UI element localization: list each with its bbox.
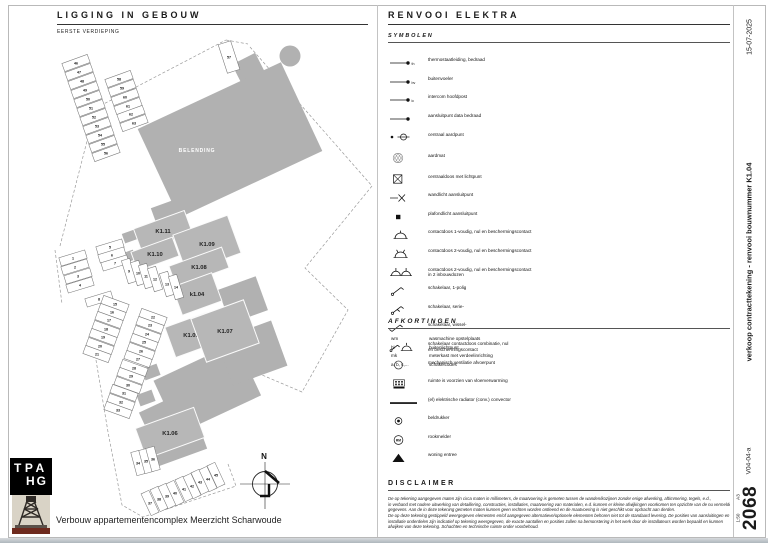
parking-stall-number: 47 bbox=[77, 70, 81, 74]
sheet-scale: 1:50 bbox=[736, 514, 741, 523]
legend-row: plafondlicht aansluitpunt bbox=[388, 209, 730, 227]
abbreviation-value: meterkast met verdeelinrichting bbox=[429, 353, 493, 358]
sw1-icon bbox=[388, 283, 428, 301]
parking-stall-number: 32 bbox=[119, 400, 123, 404]
parking-stall-number: 19 bbox=[101, 335, 105, 339]
parking-stall-number: 44 bbox=[206, 477, 210, 481]
socket2b-icon bbox=[388, 264, 428, 282]
legend-label: centraaldoos met lichtpunt bbox=[428, 174, 482, 180]
parking-stall-number: 20 bbox=[98, 344, 102, 348]
disclaimer-line: afwijken van deze tekening. Schachten en… bbox=[388, 524, 730, 530]
parking-stall-number: 11 bbox=[144, 274, 148, 278]
wire-icon bbox=[388, 111, 428, 129]
parking-stall-number: 25 bbox=[142, 340, 146, 344]
legend-label: plafondlicht aansluitpunt bbox=[428, 211, 477, 217]
unit-label: K1.11 bbox=[155, 229, 171, 235]
parking-stall-number: 36 bbox=[151, 457, 155, 461]
parking-stall-number: 46 bbox=[74, 61, 78, 65]
legend-row: schakelaar, 1-polig bbox=[388, 283, 730, 301]
logo-line-2: HG bbox=[10, 474, 52, 488]
unit-label: K1.07 bbox=[217, 329, 232, 335]
legend-label: schakelaar, 1-polig bbox=[428, 285, 466, 291]
divider-titleblock bbox=[733, 5, 734, 537]
project-title: Verbouw appartementencomplex Meerzicht S… bbox=[56, 515, 282, 525]
abbreviation-value: schakelcodes bbox=[429, 362, 457, 367]
abbreviation-row: blbuitenlichtpunt bbox=[388, 345, 730, 350]
parking-stall-number: 34 bbox=[136, 461, 140, 465]
svg-text:ic: ic bbox=[412, 99, 415, 103]
logo-line-1: TPA bbox=[10, 458, 52, 475]
svg-text:RM: RM bbox=[396, 438, 401, 442]
parking-stall-number: 55 bbox=[101, 142, 105, 146]
parking-stall-number: 22 bbox=[151, 315, 155, 319]
divider-plan-legend bbox=[377, 5, 378, 537]
legend-row: contactdoos 2-voudig, nul en bescherming… bbox=[388, 264, 730, 282]
earth-icon bbox=[388, 129, 428, 147]
parking-stall-number: 35 bbox=[144, 459, 148, 463]
legend-row: beldrukker bbox=[388, 413, 730, 431]
unit-label: k1.04 bbox=[190, 292, 205, 298]
parking-stall-number: 40 bbox=[173, 491, 177, 495]
legend-label: intercom hoofdpost bbox=[428, 94, 467, 100]
parking-stall-number: 58 bbox=[117, 77, 121, 81]
abbreviation-list: wmwasmachine opstelplaatsblbuitenlichtpu… bbox=[388, 336, 730, 367]
symbols-heading: SYMBOLEN bbox=[388, 33, 730, 39]
page-bottom-edge bbox=[0, 538, 768, 543]
parking-stall-number: 53 bbox=[95, 124, 99, 128]
unit-label: K1.08 bbox=[191, 265, 207, 271]
symbol-list: ththermostaatleiding, bedraadbvbuitenvoe… bbox=[388, 55, 730, 468]
parking-stall-number: 5 bbox=[109, 245, 111, 249]
parking-stall-number: 42 bbox=[190, 484, 194, 488]
parking-stall-number: 4 bbox=[79, 283, 81, 287]
parking-stall-number: 1 bbox=[72, 256, 74, 260]
wire-icon: bv bbox=[388, 74, 428, 92]
legend-row: schakelaar, serie- bbox=[388, 302, 730, 320]
legend-label: contactdoos 2-voudig, nul en bescherming… bbox=[428, 267, 531, 279]
parking-stall-number: 27 bbox=[136, 357, 140, 361]
legend-label: thermostaatleiding, bedraad bbox=[428, 57, 485, 63]
parking-stall-number: 56 bbox=[104, 151, 108, 155]
parking-stall-number: 8 bbox=[98, 297, 100, 301]
tower-logo-image bbox=[12, 495, 50, 528]
disclaimer-line: De op deze tekening gestippeld weergegev… bbox=[388, 513, 730, 519]
legend-label: contactdoos 1-voudig, nul en bescherming… bbox=[428, 229, 531, 235]
legend-label: schakelaar, serie- bbox=[428, 304, 464, 310]
legend-label: (el) elektrische radiator (conv.) convec… bbox=[428, 397, 511, 403]
disclaimer-heading: DISCLAIMER bbox=[388, 480, 730, 487]
disclaimer-rule bbox=[388, 490, 730, 491]
legend-label: ruimte is voorzien van vloerverwarming bbox=[428, 378, 508, 384]
legend-title-rule bbox=[388, 24, 730, 25]
parking-stall-number: 13 bbox=[165, 282, 169, 286]
abbreviations-section: AFKORTINGEN wmwasmachine opstelplaatsblb… bbox=[388, 318, 730, 370]
abbreviation-row: mkmeterkast met verdeelinrichting bbox=[388, 353, 730, 358]
parking-stall-number: 33 bbox=[116, 408, 120, 412]
parking-stall-number: 41 bbox=[182, 487, 186, 491]
sheet-version: V04-04-a bbox=[746, 448, 753, 475]
building-mass bbox=[138, 62, 323, 218]
parking-stall-number: 24 bbox=[145, 332, 149, 336]
swserie-icon bbox=[388, 302, 428, 320]
abbreviation-key: a, b, c,... bbox=[388, 362, 429, 367]
plan-subtitle: EERSTE VERDIEPING bbox=[57, 29, 119, 35]
legend-label: rookmelder bbox=[428, 434, 451, 440]
abbreviation-row: wmwasmachine opstelplaats bbox=[388, 336, 730, 341]
svg-text:th: th bbox=[412, 62, 415, 66]
disclaimer-line: De op tekening aangegeven maten zijn cir… bbox=[388, 496, 730, 502]
legend-label: woning entree bbox=[428, 452, 457, 458]
symbols-rule bbox=[388, 42, 730, 43]
legend-title: RENVOOI ELEKTRA bbox=[388, 10, 730, 20]
parking-stall-number: 38 bbox=[157, 497, 161, 501]
parking-stall-number: 45 bbox=[214, 473, 218, 477]
tower-top bbox=[280, 46, 301, 67]
logo-caption-bar bbox=[12, 528, 50, 534]
parking-stall-number: 57 bbox=[227, 55, 231, 59]
parking-stall-number: 12 bbox=[153, 277, 157, 281]
parking-stall-number: 54 bbox=[98, 133, 102, 137]
legend-label: wandlicht aansluitpunt bbox=[428, 192, 473, 198]
smoke-icon: RM bbox=[388, 432, 428, 450]
legend-row: RMrookmelder bbox=[388, 432, 730, 450]
bell-icon bbox=[388, 413, 428, 431]
mat-icon bbox=[388, 150, 428, 168]
parking-stall-number: 9 bbox=[128, 269, 130, 273]
wall-icon bbox=[388, 190, 428, 208]
parking-stall-number: 28 bbox=[132, 366, 136, 370]
wire-icon: ic bbox=[388, 92, 428, 110]
tower-drawing bbox=[12, 495, 50, 528]
unit-label: K1.10 bbox=[147, 252, 162, 258]
unit-label: K1.09 bbox=[199, 242, 215, 248]
parking-stall-number: 21 bbox=[95, 352, 99, 356]
drawing-sheet: K1.11K1.09K1.10K1.08k1.04K1.05K1.07K1.06… bbox=[0, 0, 768, 543]
parking-stall-number: 43 bbox=[198, 480, 202, 484]
parking-stall-number: 63 bbox=[132, 121, 136, 125]
parking-stall-number: 29 bbox=[129, 374, 133, 378]
building-plan-svg: K1.11K1.09K1.10K1.08k1.04K1.05K1.07K1.06… bbox=[0, 0, 377, 543]
wire-icon: th bbox=[388, 55, 428, 73]
legend-label: contactdoos 2-voudig, nul en bescherming… bbox=[428, 248, 531, 254]
legend-row: wandlicht aansluitpunt bbox=[388, 190, 730, 208]
parking-stall-number: 59 bbox=[120, 86, 124, 90]
parking-stall-number: 31 bbox=[122, 391, 126, 395]
parking-stall-number: 62 bbox=[129, 112, 133, 116]
plan-title: LIGGING IN GEBOUW bbox=[57, 10, 202, 20]
disclaimer-text: De op tekening aangegeven maten zijn cir… bbox=[388, 496, 730, 530]
belending-label: BELENDING bbox=[179, 148, 216, 154]
parking-stall-number: 14 bbox=[174, 285, 178, 289]
parking-stall-number: 16 bbox=[110, 310, 114, 314]
abbreviations-rule bbox=[388, 328, 730, 329]
legend-row: icintercom hoofdpost bbox=[388, 92, 730, 110]
tpa-hg-logo: TPA HG bbox=[10, 458, 52, 495]
legend-label: aansluitpunt data bedraad bbox=[428, 113, 481, 119]
parking-stall-number: 10 bbox=[136, 271, 140, 275]
legend-row: aardmat bbox=[388, 150, 730, 168]
north-arrow-foot bbox=[260, 484, 269, 496]
parking-stall-number: 39 bbox=[165, 494, 169, 498]
legend-label: centraal aardpunt bbox=[428, 132, 464, 138]
svg-text:bv: bv bbox=[412, 80, 416, 84]
parking-stall-number: 6 bbox=[111, 253, 113, 257]
sheet-number: 2068 bbox=[740, 486, 762, 530]
socket1-icon bbox=[388, 227, 428, 245]
parking-stall-number: 50 bbox=[86, 97, 90, 101]
plan-title-rule bbox=[57, 24, 368, 25]
legend-row: contactdoos 1-voudig, nul en bescherming… bbox=[388, 227, 730, 245]
legend-row: (el) elektrische radiator (conv.) convec… bbox=[388, 395, 730, 413]
legend-label: buitenvoeler bbox=[428, 76, 453, 82]
north-label: N bbox=[261, 452, 267, 461]
legend-label: beldrukker bbox=[428, 415, 449, 421]
parking-stall-number: 49 bbox=[83, 88, 87, 92]
parking-stall-number: 17 bbox=[107, 318, 111, 322]
socket2-icon bbox=[388, 246, 428, 264]
legend-row: centraal aardpunt bbox=[388, 129, 730, 147]
legend-row: woning entree bbox=[388, 450, 730, 468]
legend-label: aardmat bbox=[428, 153, 445, 159]
parking-stall-number: 51 bbox=[89, 106, 93, 110]
sheet-date: 15-07-2025 bbox=[747, 19, 754, 55]
legend-row: ththermostaatleiding, bedraad bbox=[388, 55, 730, 73]
sheet-paper-size: A3 bbox=[736, 494, 741, 500]
parking-stall-number: 26 bbox=[139, 349, 143, 353]
abbreviation-key: wm bbox=[388, 336, 429, 341]
parking-stall-number: 3 bbox=[77, 274, 79, 278]
legend-row: centraaldoos met lichtpunt bbox=[388, 171, 730, 189]
sheet-document-title: verkoop contracttekening - renvooi bouwn… bbox=[745, 163, 754, 362]
parking-stall-number: 60 bbox=[123, 95, 127, 99]
abbreviation-key: mk bbox=[388, 353, 429, 358]
abbreviation-key: bl bbox=[388, 345, 429, 350]
legend-row: bvbuitenvoeler bbox=[388, 74, 730, 92]
abbreviation-row: a, b, c,...schakelcodes bbox=[388, 362, 730, 367]
parking-stall-number: 23 bbox=[148, 323, 152, 327]
parking-stall-number: 30 bbox=[126, 383, 130, 387]
legend-panel: RENVOOI ELEKTRA SYMBOLEN ththermostaatle… bbox=[388, 10, 730, 469]
abbreviation-value: buitenlichtpunt bbox=[429, 345, 459, 350]
radiator-icon bbox=[388, 395, 428, 413]
parking-stall-number: 37 bbox=[148, 501, 152, 505]
parking-stall-number: 15 bbox=[113, 302, 117, 306]
abbreviation-value: wasmachine opstelplaats bbox=[429, 336, 480, 341]
north-arrow-diagonal bbox=[265, 471, 279, 483]
parking-stall-number: 61 bbox=[126, 104, 130, 108]
abbreviations-heading: AFKORTINGEN bbox=[388, 318, 730, 325]
legend-row: contactdoos 2-voudig, nul en bescherming… bbox=[388, 246, 730, 264]
legend-row: aansluitpunt data bedraad bbox=[388, 111, 730, 129]
floorheat-icon bbox=[388, 376, 428, 394]
parking-stall-number: 18 bbox=[104, 327, 108, 331]
legend-row: ruimte is voorzien van vloerverwarming bbox=[388, 376, 730, 394]
boxx-icon bbox=[388, 171, 428, 189]
sq-icon bbox=[388, 209, 428, 227]
entry-icon bbox=[388, 450, 428, 468]
parking-stall-number: 2 bbox=[74, 265, 76, 269]
unit-label: K1.06 bbox=[162, 431, 178, 437]
parking-stall-number: 7 bbox=[114, 261, 116, 265]
parking-stall-number: 48 bbox=[80, 79, 84, 83]
parking-stall-number: 52 bbox=[92, 115, 96, 119]
disclaimer-section: DISCLAIMER De op tekening aangegeven mat… bbox=[388, 480, 730, 530]
